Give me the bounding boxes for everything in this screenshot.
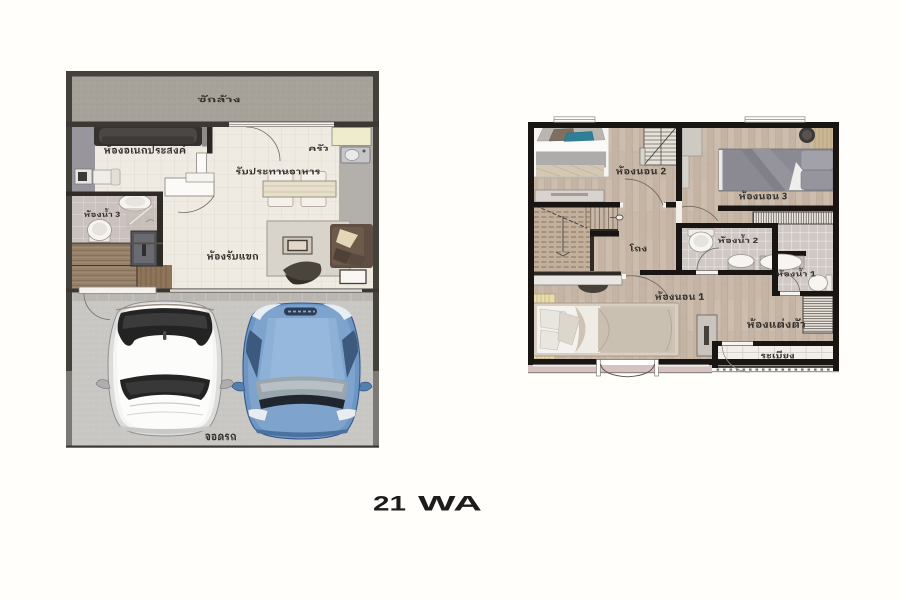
svg-text:21: 21 — [373, 493, 406, 516]
svg-text:WA: WA — [418, 493, 482, 516]
